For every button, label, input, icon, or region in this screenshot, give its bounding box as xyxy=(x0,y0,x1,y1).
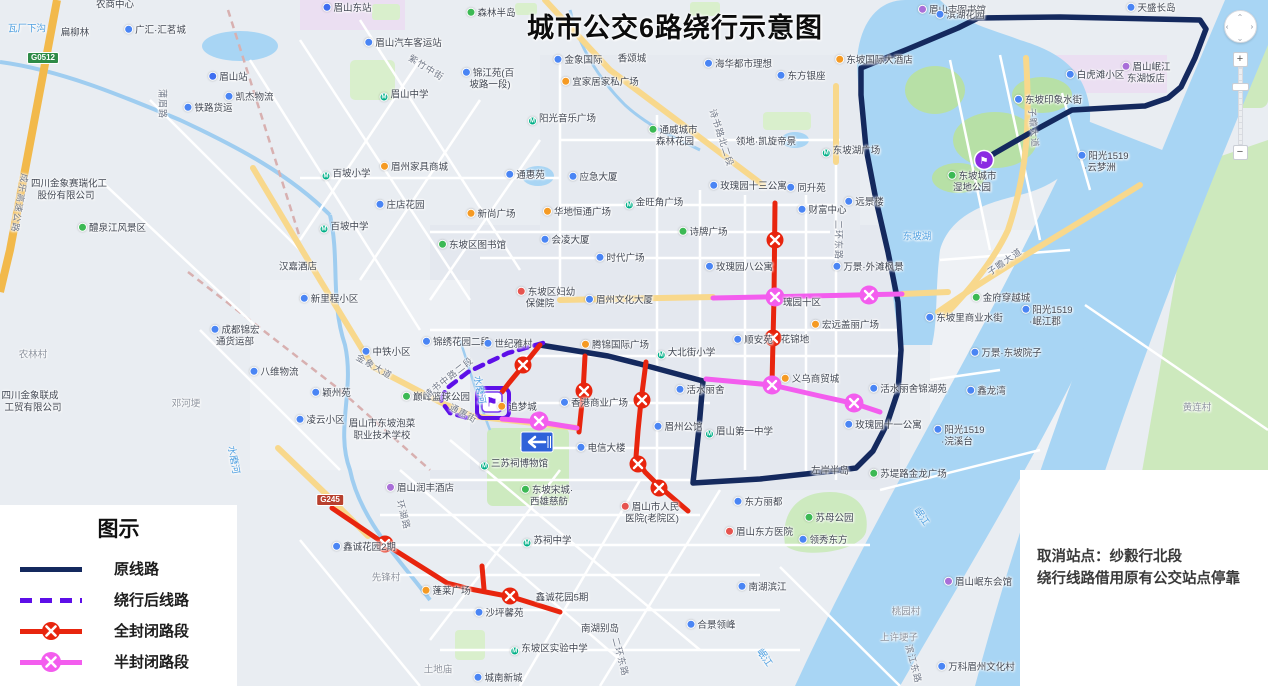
closure-x-marker xyxy=(502,588,519,605)
bus-terminal-icon: ⚑ xyxy=(482,392,502,412)
map-title: 城市公交6路绕行示意图 xyxy=(527,6,823,45)
legend-title: 图示 xyxy=(0,513,237,543)
legend-item: 全封闭路段 xyxy=(0,615,237,646)
zoom-slider-handle[interactable] xyxy=(1232,83,1249,91)
pan-down-icon[interactable]: ⌃ xyxy=(1237,33,1244,42)
legend-item-label: 半封闭路段 xyxy=(114,651,189,672)
closure-x-marker xyxy=(763,376,782,395)
zoom-in-button[interactable]: + xyxy=(1233,52,1248,67)
map-controls: ⌃ ⌃ ⌃ ⌃ + − xyxy=(1220,10,1260,160)
pan-up-icon[interactable]: ⌃ xyxy=(1237,13,1244,22)
route-closed xyxy=(332,508,560,612)
notice-line1: 取消站点：纱縠行北段 xyxy=(1037,546,1268,568)
oneway-sign-icon xyxy=(521,432,553,452)
route-closed xyxy=(482,566,484,589)
closure-x-marker xyxy=(576,383,593,400)
closure-x-marker xyxy=(634,392,651,409)
pan-right-icon[interactable]: ⌃ xyxy=(1245,23,1254,30)
legend-item: 绕行后线路 xyxy=(0,584,237,615)
legend-item: 原线路 xyxy=(0,553,237,584)
svg-text:⚑: ⚑ xyxy=(486,395,498,410)
closure-x-marker xyxy=(377,536,394,553)
closure-x-marker xyxy=(39,619,63,643)
closure-x-marker xyxy=(651,480,668,497)
closure-x-marker xyxy=(860,286,879,305)
legend-item: 半封闭路段 xyxy=(0,646,237,677)
pan-control[interactable]: ⌃ ⌃ ⌃ ⌃ xyxy=(1224,10,1257,43)
map-canvas[interactable]: ⚑⚑ 瓦厂下沟扁柳林农商中心广汇·汇茗城G0512眉山站铁路货运凯杰物流蒲眉路成… xyxy=(0,0,1268,686)
notice-panel: 取消站点：纱縠行北段 绕行线路借用原有公交站点停靠 xyxy=(1020,470,1268,686)
svg-text:⚑: ⚑ xyxy=(980,156,989,167)
closure-x-marker xyxy=(39,650,63,674)
closure-x-marker xyxy=(845,394,864,413)
legend-item-label: 绕行后线路 xyxy=(114,589,189,610)
legend-item-label: 全封闭路段 xyxy=(114,620,189,641)
notice-line2: 绕行线路借用原有公交站点停靠 xyxy=(1037,568,1268,590)
legend-item-label: 原线路 xyxy=(114,558,159,579)
pan-left-icon[interactable]: ⌃ xyxy=(1225,23,1234,30)
closure-x-marker xyxy=(766,288,785,307)
bus-terminal-icon: ⚑ xyxy=(975,151,994,170)
closure-x-marker xyxy=(530,412,549,431)
closure-x-marker xyxy=(765,330,782,347)
closure-x-marker xyxy=(767,232,784,249)
closure-x-marker xyxy=(630,456,647,473)
zoom-out-button[interactable]: − xyxy=(1233,145,1248,160)
legend-panel: 图示 原线路绕行后线路全封闭路段半封闭路段 xyxy=(0,505,237,686)
closure-x-marker xyxy=(515,357,532,374)
